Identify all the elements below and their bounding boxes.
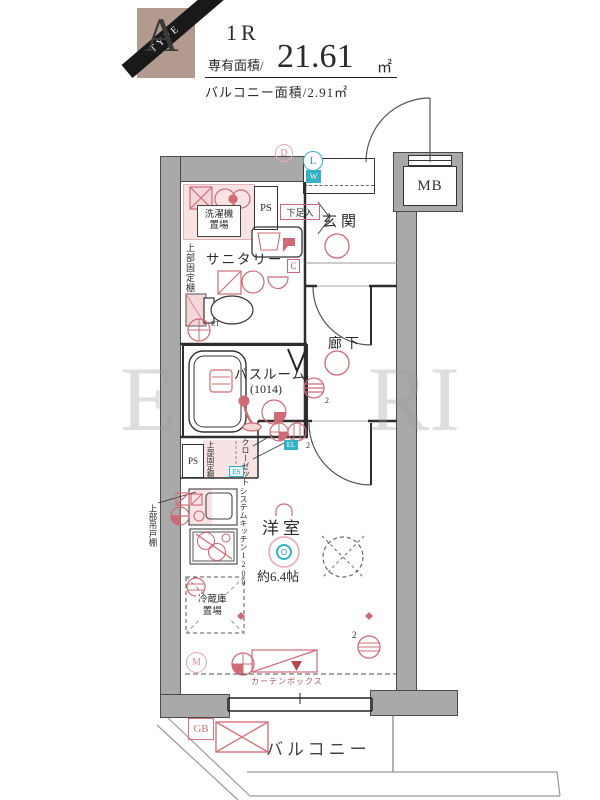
- ps-top-label: PS: [260, 203, 272, 214]
- bathroom-fixtures: [183, 345, 307, 437]
- badge-m: M: [186, 652, 207, 673]
- badge-el-label: EL: [287, 441, 296, 449]
- label-fridge: 冷蔵庫 置場: [196, 594, 229, 620]
- balcony-area-text: バルコニー面積/2.91㎡: [205, 82, 348, 101]
- label-western-room: 洋室: [262, 514, 304, 539]
- badge-c-label: C: [290, 261, 296, 271]
- cupboard-symbols: [158, 492, 196, 525]
- label-curtain-box: カーテンボックス: [251, 676, 323, 687]
- area-value: 21.61: [277, 38, 354, 76]
- kitchen-fixtures: [189, 489, 237, 564]
- label-system-kitchen: システムキッチン1200: [238, 487, 249, 587]
- label-bathroom: バスルーム: [234, 363, 306, 383]
- label-upper-fixed-shelf-1: 上部固定棚: [184, 243, 197, 293]
- label-shoe-box: 下足入: [280, 204, 320, 220]
- layout-type: 1R: [226, 20, 260, 46]
- label-washer: 洗濯機 置場: [197, 205, 241, 237]
- label-corridor: 廊下: [328, 333, 362, 353]
- ps-top-box: PS: [254, 186, 278, 230]
- area-label: 専有面積/: [208, 55, 264, 74]
- label-washer-line1: 洗濯機: [205, 210, 234, 221]
- balcony-hatch-box: [216, 722, 268, 752]
- badge-l: L: [303, 151, 323, 171]
- label-balcony: バルコニー: [266, 735, 371, 760]
- num2-corridor: 2: [325, 396, 329, 405]
- room-door: [309, 423, 371, 485]
- label-closet: クローゼット: [240, 438, 251, 486]
- entrance-door: [366, 98, 430, 162]
- badge-d-label: D: [280, 148, 287, 159]
- sanitary-floor-icons: [218, 271, 288, 294]
- num2-closet: 2: [306, 441, 310, 450]
- balcony-window: [228, 693, 372, 711]
- badge-gb-label: GB: [193, 723, 208, 735]
- badge-m-label: M: [192, 657, 201, 668]
- label-fridge-line1: 冷蔵庫: [198, 595, 227, 607]
- badge-d: D: [275, 144, 293, 162]
- badge-gb: GB: [188, 718, 214, 740]
- badge-c: C: [287, 259, 300, 273]
- badge-es-label: ES: [232, 468, 240, 476]
- badge-w: W: [306, 170, 321, 183]
- ps-side-label: PS: [188, 456, 198, 466]
- label-sanitary: サニタリー: [206, 248, 284, 268]
- label-bathroom-size: (1014): [250, 382, 282, 397]
- label-upper-fixed-shelf-2: 上部固定棚: [205, 441, 216, 479]
- num2-room: 2: [352, 630, 357, 640]
- label-washer-line2: 置場: [209, 221, 228, 232]
- ps-side-box: PS: [182, 444, 204, 478]
- toilet: [186, 294, 253, 341]
- label-western-room-size: 約6.4帖: [257, 566, 299, 585]
- room-symbols: [232, 504, 380, 675]
- area-unit: ㎡: [377, 56, 392, 77]
- curtain-box: [252, 650, 317, 672]
- badge-es: ES: [229, 466, 244, 477]
- badge-el: EL: [284, 440, 298, 450]
- badge-et: ET: [211, 320, 220, 328]
- label-upper-hanging-cupboard: 上部吊戸棚: [147, 504, 159, 547]
- badge-w-label: W: [310, 172, 318, 181]
- label-genkan: 玄関: [322, 210, 360, 231]
- floorplan-page: TYPE A 1R 専有面積/ 21.61 ㎡ バルコニー面積/2.91㎡ E …: [0, 0, 600, 800]
- label-fridge-line2: 置場: [203, 607, 222, 619]
- badge-l-label: L: [310, 155, 317, 167]
- corridor-symbols: [304, 234, 349, 398]
